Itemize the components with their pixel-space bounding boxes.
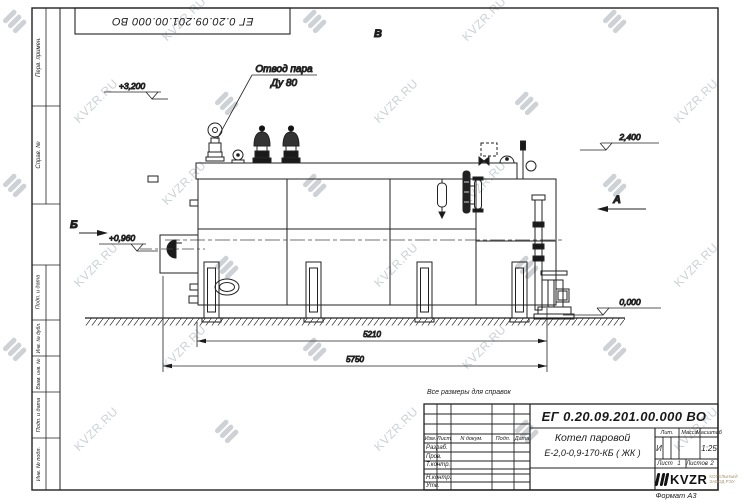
tb-product-line2: Е-2,0-0,9-170-КБ ( ЖК ) [530,446,655,460]
rear-equipment [532,195,574,319]
steam-outlet-callout [217,75,317,139]
logo-coil-icon [656,473,668,486]
logo-subtitle-line2: ЗАВОД РЭУ [709,479,737,484]
margin-label-perv-primen: Перв. примен. [34,8,44,106]
steam-valve [206,123,224,161]
tb-col-ndoc: N докум. [451,434,492,443]
company-logo: KVZR КОТЕЛЬНЫЙ ЗАВОД РЭУ [656,469,718,489]
top-stamp-text: ЕГ 0.20.09.201.00.000 ВО [75,8,290,34]
margin-label-sprav-no: Справ. № [34,106,44,204]
elevation-marks [99,92,661,315]
elevation-ground: 0,000 [619,297,641,307]
view-label-a: А [612,194,621,206]
margin-label-inv-dubl: Инв. № дубл. [34,320,44,356]
tb-row-razrab: Разраб. [426,443,452,452]
tb-lit-header: Лит. [655,428,679,437]
tb-col-list: Лист [437,434,451,443]
tb-col-podp: Подп. [492,434,514,443]
margin-label-podp-data-2: Подп. и дата [34,392,44,438]
tb-col-izm: Изм. [424,434,437,443]
section-label-b: Б [70,219,78,231]
dim-5210: 5210 [363,330,381,339]
tb-product-line1: Котел паровой [530,430,655,446]
view-label-v: В [374,28,382,40]
logo-subtitle: КОТЕЛЬНЫЙ ЗАВОД РЭУ [709,474,737,484]
steam-outlet-label-line1: Отвод пара [255,64,313,75]
elevation-top: +3,200 [119,81,146,91]
tb-row-prov: Пров. [426,452,452,461]
format-label: Формат А3 [596,490,750,500]
tb-scale-value: 1:25 [700,437,718,459]
dim-5750: 5750 [346,355,364,364]
elevation-burner: +0,960 [109,233,136,243]
tb-sheets-label: Листов [686,459,708,468]
tb-sheet-label: Лист [656,459,674,468]
tb-sheet-value: 1 [674,459,684,468]
margin-label-inv-podl: Инв. № подл. [34,438,44,490]
tb-col-data: Дата [514,434,530,443]
title-block-designation: ЕГ 0.20.09.201.00.000 ВО [530,404,718,428]
drawing-sheet: KVZR.RUKVZR.RUKVZR.RUKVZR.RUKVZR.RUKVZR.… [0,0,750,500]
tb-lit-value: И [655,437,663,459]
logo-text: KVZR [670,472,707,487]
burner-unit [140,200,205,303]
tb-sheets-value: 2 [707,459,717,468]
tb-row-tkontr: Т.контр. [426,461,452,469]
drum-flange [232,150,244,163]
boiler-body [148,163,565,305]
drum-top-fittings [479,141,536,179]
tb-scale-header: Масштаб [700,428,718,437]
reference-note: Все размеры для справок [427,388,547,397]
view-arrows [79,206,646,236]
tb-row-utv: Утв. [426,482,452,490]
safety-valves [253,126,300,163]
support-legs [202,262,529,322]
margin-label-vzam-inv: Взам. инв. № [34,356,44,392]
steam-outlet-label-line2: Ду 80 [270,78,297,89]
margin-label-podp-data-1: Подп. и дата [34,265,44,320]
elevation-right: 2,400 [618,132,641,142]
boiler-drawing: 5210 5750 +3,200 2,400 +0,960 0,000 [70,28,661,372]
tb-row-nkontr: Н.контр. [426,474,452,482]
